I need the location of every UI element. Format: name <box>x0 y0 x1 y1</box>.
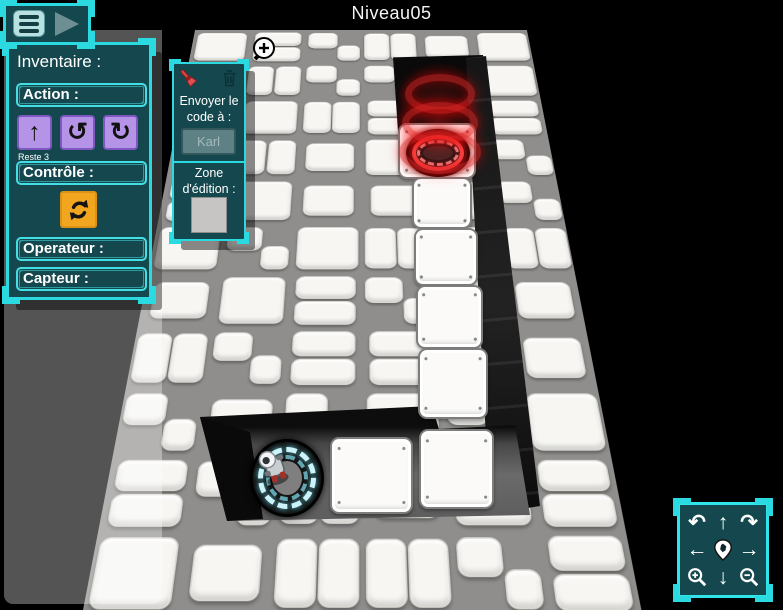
floor-tile <box>390 34 416 60</box>
locate-button[interactable] <box>710 536 736 563</box>
section-header-capteur: Capteur : <box>16 267 147 291</box>
floor-tile <box>305 143 354 171</box>
edit-zone-label: Zone d'édition : <box>174 166 244 197</box>
menu-button[interactable] <box>13 10 45 37</box>
floor-tile <box>266 141 297 174</box>
floor-tile <box>249 355 282 383</box>
inventory-panel: Inventaire : Action : ↑ ↺ ↻ Reste 3 Cont… <box>6 42 152 300</box>
floor-tile <box>532 199 562 220</box>
floor-tile <box>218 278 287 324</box>
divider <box>174 161 244 163</box>
pan-right-button[interactable]: → <box>736 536 762 563</box>
floor-tile <box>408 539 452 607</box>
floor-tile <box>160 419 197 450</box>
code-panel: Envoyer le code à : Karl Zone d'édition … <box>172 62 246 241</box>
floor-tile <box>273 67 301 95</box>
zoom-out-icon <box>738 566 760 588</box>
floor-tile <box>211 333 253 361</box>
floor-tile <box>188 544 262 601</box>
rotate-right-icon: ↷ <box>740 512 758 533</box>
zoom-in-icon <box>686 566 708 588</box>
section-header-controle: Contrôle : <box>16 161 147 185</box>
section-header-action: Action : <box>16 83 147 107</box>
rotate-left-icon: ↶ <box>688 512 706 533</box>
loop-icon <box>66 197 92 223</box>
rotate-cw-icon: ↻ <box>110 120 131 145</box>
pan-down-button[interactable]: ↓ <box>710 564 736 591</box>
floor-tile <box>194 33 248 60</box>
zoom-cursor-icon <box>250 35 278 63</box>
floor-tile <box>487 101 540 117</box>
location-pin-icon <box>712 538 734 562</box>
floor-tile <box>332 102 360 132</box>
floor-tile <box>541 494 619 526</box>
rotate-ccw-icon: ↺ <box>67 120 88 145</box>
floor-tile <box>365 278 403 304</box>
path-tile <box>418 348 488 419</box>
floor-tile <box>167 334 208 382</box>
floor-tile <box>523 337 588 378</box>
floor-tile <box>306 66 337 83</box>
floor-tile <box>296 227 358 269</box>
floor-tile <box>242 101 299 133</box>
camera-nav-panel: ↶ ↑ ↷ ← → ↓ <box>677 502 769 598</box>
turn-left-button[interactable]: ↺ <box>60 115 95 150</box>
floor-tile <box>294 301 357 324</box>
floor-tile <box>547 536 628 570</box>
turn-right-button[interactable]: ↻ <box>103 115 138 150</box>
floor-tile <box>537 460 613 491</box>
floor-tile <box>317 539 359 607</box>
arrow-up-icon: ↑ <box>28 120 41 145</box>
send-code-label: Envoyer le code à : <box>174 94 244 125</box>
floor-tile <box>245 67 274 95</box>
level-title: Niveau05 <box>0 3 783 24</box>
paintbrush-icon[interactable] <box>177 67 199 89</box>
floor-tile <box>365 228 397 268</box>
floor-tile <box>336 79 360 95</box>
play-button[interactable] <box>55 12 79 36</box>
zoom-out-button[interactable] <box>736 564 762 591</box>
arrow-right-icon: → <box>739 539 760 560</box>
move-forward-button[interactable]: ↑ <box>17 115 52 150</box>
floor-tile <box>552 574 635 610</box>
loop-button[interactable] <box>60 191 97 228</box>
floor-tile <box>303 102 332 132</box>
floor-tile <box>303 185 354 216</box>
floor-tile <box>308 33 338 48</box>
path-tile <box>416 285 483 349</box>
floor-tile <box>534 228 572 268</box>
floor-tile <box>260 246 290 269</box>
floor-tile <box>364 34 390 60</box>
floor-tile <box>292 332 356 357</box>
pan-left-button[interactable]: ← <box>684 536 710 563</box>
arrow-up-icon: ↑ <box>718 512 729 533</box>
path-tile <box>414 228 478 286</box>
floor-tile <box>366 539 408 607</box>
floor-tile <box>295 276 356 298</box>
game-window: Niveau05 Inventaire : Action : ↑ ↺ ↻ Res… <box>0 0 783 610</box>
path-tile <box>330 437 413 514</box>
arrow-down-icon: ↓ <box>718 567 729 588</box>
path-tile-corner <box>419 429 494 509</box>
zoom-in-button[interactable] <box>684 564 710 591</box>
hamburger-icon <box>19 15 39 19</box>
menu-toolbar <box>3 3 91 45</box>
rotate-camera-right-button[interactable]: ↷ <box>736 509 762 536</box>
floor-tile <box>273 539 317 607</box>
floor-tile <box>526 394 606 450</box>
pan-up-button[interactable]: ↑ <box>710 509 736 536</box>
top-bar: Niveau05 <box>0 0 783 28</box>
floor-tile <box>504 569 545 609</box>
inventory-title: Inventaire : <box>17 52 101 72</box>
trash-icon[interactable] <box>220 67 239 89</box>
floor-tile <box>515 282 576 319</box>
rotate-camera-left-button[interactable]: ↶ <box>684 509 710 536</box>
goal-beacon-icon <box>398 66 474 178</box>
floor-tile <box>489 118 543 134</box>
arrow-left-icon: ← <box>687 539 708 560</box>
path-tile <box>412 177 472 229</box>
floor-tile <box>424 36 469 58</box>
floor-tile <box>290 359 356 385</box>
floor-tile <box>455 538 505 578</box>
code-target-button[interactable]: Karl <box>181 128 236 155</box>
section-header-operateur: Operateur : <box>16 237 147 261</box>
floor-tile <box>525 155 554 174</box>
floor-tile <box>364 66 394 83</box>
edit-zone-swatch[interactable] <box>191 197 227 233</box>
floor-tile <box>337 45 360 60</box>
